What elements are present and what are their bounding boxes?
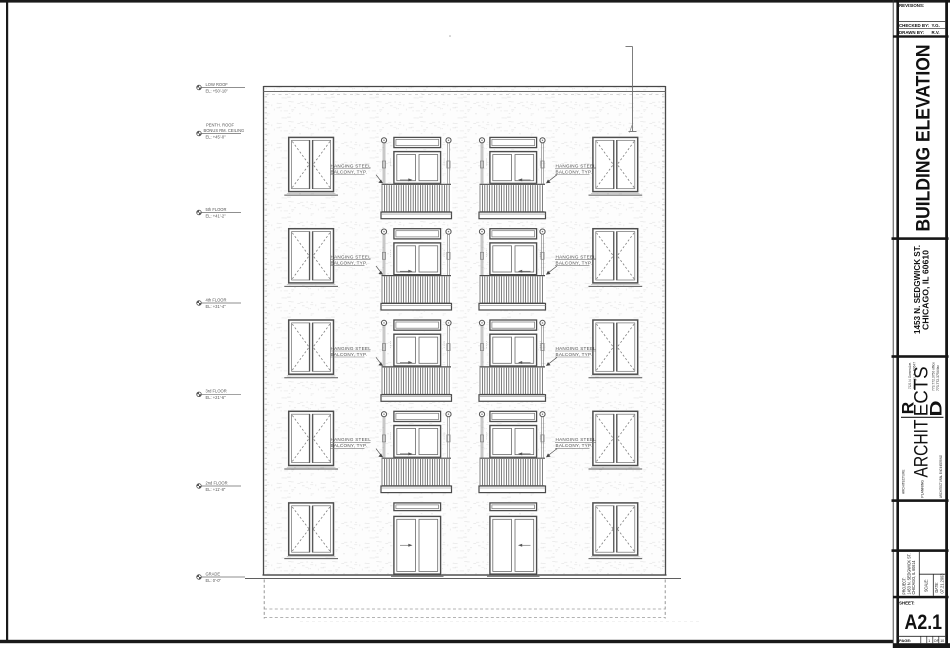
svg-text:PLANNING: PLANNING [921, 480, 925, 498]
svg-text:PENTH. ROOF: PENTH. ROOF [206, 122, 234, 127]
svg-text:4th FLOOR: 4th FLOOR [206, 297, 227, 302]
svg-text:HANGING STEEL: HANGING STEEL [556, 163, 597, 168]
svg-text:HANGING STEEL: HANGING STEEL [331, 255, 372, 260]
svg-text:BALCONY, TYP.: BALCONY, TYP. [331, 443, 368, 448]
svg-text:EL: +41'-2": EL: +41'-2" [206, 213, 227, 218]
svg-text:BALCONY, TYP.: BALCONY, TYP. [556, 443, 593, 448]
svg-text:EL: +45'-0": EL: +45'-0" [206, 134, 227, 139]
svg-text:10: 10 [940, 639, 944, 643]
svg-text:HANGING STEEL: HANGING STEEL [556, 437, 597, 442]
svg-text:ARCHITECTURAL ENGINEERING: ARCHITECTURAL ENGINEERING [939, 455, 943, 498]
svg-text:3rd FLOOR: 3rd FLOOR [206, 389, 227, 394]
svg-text:EL: 0'-0": EL: 0'-0" [206, 578, 222, 583]
svg-text:CHICAGO, IL 60610: CHICAGO, IL 60610 [921, 250, 931, 330]
svg-text:BALCONY, TYP.: BALCONY, TYP. [331, 169, 368, 174]
svg-text:EL: +50'-10": EL: +50'-10" [206, 88, 229, 93]
svg-text:GRADE: GRADE [206, 571, 221, 576]
svg-text:EL: +21'-6": EL: +21'-6" [206, 395, 227, 400]
svg-text:BONUS RM. CEILING: BONUS RM. CEILING [204, 128, 245, 133]
svg-text:BALCONY, TYP.: BALCONY, TYP. [331, 352, 368, 357]
svg-text:CHECKED BY:: CHECKED BY: [899, 23, 930, 28]
svg-text:HANGING STEEL: HANGING STEEL [331, 346, 372, 351]
svg-text:EL: +11'-8": EL: +11'-8" [206, 487, 226, 492]
svg-text:HANGING STEEL: HANGING STEEL [331, 437, 372, 442]
svg-text:R: R [899, 402, 917, 415]
svg-text:DRAWN BY:: DRAWN BY: [899, 30, 925, 35]
svg-text:BALCONY, TYP.: BALCONY, TYP. [331, 261, 368, 266]
svg-text:HANGING STEEL: HANGING STEEL [331, 163, 372, 168]
svg-text:BALCONY, TYP.: BALCONY, TYP. [556, 169, 593, 174]
svg-text:DATE:: DATE: [934, 582, 939, 593]
svg-text:BALCONY, TYP.: BALCONY, TYP. [556, 352, 593, 357]
svg-text:5th FLOOR: 5th FLOOR [206, 207, 227, 212]
svg-text:2nd FLOOR: 2nd FLOOR [206, 480, 228, 485]
svg-text:BUILDING ELEVATION: BUILDING ELEVATION [914, 45, 935, 232]
svg-text:773.772.3754 fax: 773.772.3754 fax [936, 365, 940, 391]
svg-text:SCALE:: SCALE: [924, 579, 929, 592]
svg-text:HANGING STEEL: HANGING STEEL [556, 346, 597, 351]
svg-text:07.21.2003: 07.21.2003 [940, 573, 945, 594]
svg-text:R.V.: R.V. [932, 30, 940, 35]
svg-text:ARCHIT: ARCHIT [912, 419, 933, 477]
svg-text:Y.G.: Y.G. [932, 23, 940, 28]
svg-text:D: D [928, 400, 946, 416]
svg-text:A2.1: A2.1 [905, 610, 943, 634]
svg-text:CHICAGO, IL 60614: CHICAGO, IL 60614 [911, 560, 916, 595]
svg-text:REVISIONS:: REVISIONS: [899, 3, 925, 8]
svg-text:OF: OF [934, 639, 940, 643]
svg-text:1: 1 [928, 639, 930, 643]
svg-text:EL: +31'-4": EL: +31'-4" [206, 304, 227, 309]
svg-text:LOW ROOF: LOW ROOF [206, 82, 229, 87]
svg-text:ARCHITECTURE: ARCHITECTURE [902, 469, 906, 494]
svg-text:PAGE:: PAGE: [899, 638, 911, 643]
svg-text:HANGING STEEL: HANGING STEEL [556, 255, 597, 260]
svg-text:BALCONY, TYP.: BALCONY, TYP. [556, 261, 593, 266]
svg-text:SHEET:: SHEET: [899, 601, 915, 606]
